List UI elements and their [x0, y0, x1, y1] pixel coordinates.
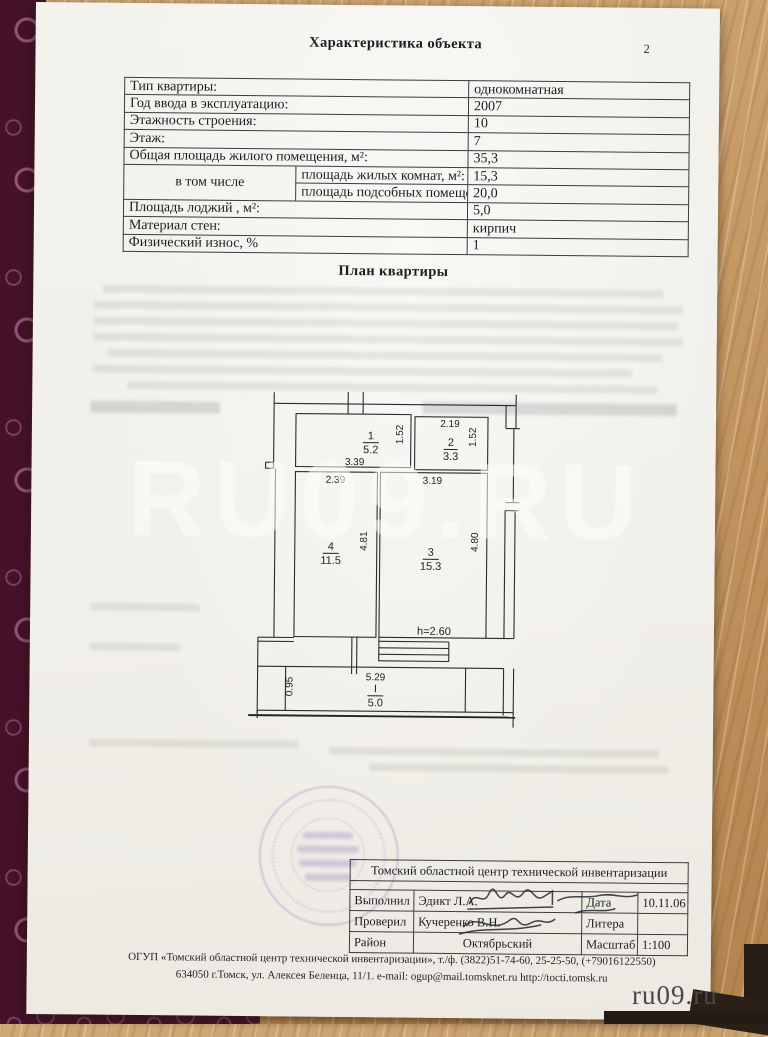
bleedthrough-line [329, 747, 659, 758]
room-depth-dim: 1.52 [395, 424, 406, 444]
row-group-label: в том числе [124, 164, 296, 200]
bleedthrough-line [369, 763, 669, 774]
bleedthrough-heading [90, 401, 220, 414]
bleedthrough-line [92, 365, 632, 378]
bleedthrough-line [93, 317, 678, 331]
page-number: 2 [644, 42, 650, 57]
dark-object-bottom [604, 1011, 768, 1024]
plan-title: План квартиры [93, 261, 693, 284]
org-cell-label: Проверил [350, 911, 414, 933]
watermark-corner: ru09.ru [632, 980, 718, 1011]
photo-of-document: { "page": { "title": "Характеристика объ… [0, 0, 768, 1024]
document-title: Характеристика объекта [96, 33, 696, 56]
room-number: 4 [328, 541, 334, 553]
room-width-dim: 2.39 [326, 475, 346, 486]
row-value: 7 [468, 133, 689, 153]
org-cell-label: Район [349, 932, 413, 954]
room-width-dim: 3.39 [345, 457, 365, 468]
room-number: 2 [448, 437, 454, 449]
room-depth-dim: 4.81 [359, 531, 370, 551]
row-value: кирпич [467, 220, 688, 240]
room-area: 3.3 [443, 451, 458, 463]
row-value: 2007 [468, 98, 689, 118]
loggia-area: 5.0 [368, 697, 383, 709]
room-depth-dim: 4.80 [470, 532, 481, 552]
row-value: 10 [468, 115, 689, 135]
row-value: 1 [467, 237, 688, 257]
row-value: 15,3 [468, 168, 689, 188]
bleedthrough-line [108, 349, 663, 362]
floor-plan-drawing: 1 5.2 3.39 1.52 2.19 2 3.3 1.52 2.39 4 1… [245, 388, 538, 733]
bleedthrough-line [93, 301, 683, 315]
bleedthrough-line [103, 285, 663, 298]
room-area: 11.5 [320, 555, 341, 567]
characteristics-table: Тип квартиры: однокомнатная Год ввода в … [123, 77, 691, 257]
row-label: Физический износ, % [123, 234, 467, 255]
bleedthrough-line [89, 739, 299, 749]
room-depth-dim: 1.52 [468, 427, 479, 447]
document-page: Характеристика объекта 2 Тип квартиры: о… [26, 2, 720, 1021]
loggia-number: I [374, 683, 377, 695]
row-value: 20,0 [468, 185, 689, 205]
row-value: 35,3 [468, 150, 689, 170]
row-value: 5,0 [467, 202, 688, 222]
room-width-dim: 3.19 [423, 476, 443, 487]
loggia-width-dim: 5.29 [366, 672, 386, 683]
ceiling-height-note: h=2.60 [417, 626, 451, 638]
bleedthrough-line [90, 643, 180, 652]
footer: ОГУП «Томский областной центр техническо… [77, 948, 707, 987]
room-area: 5.2 [363, 444, 378, 456]
bleedthrough-line [90, 603, 200, 612]
org-cell-label: Выполнил [350, 890, 414, 912]
bleedthrough-line [93, 333, 683, 347]
signature-scribbles [457, 882, 668, 946]
row-label: площадь подсобных помещений, м²: [296, 183, 468, 202]
room-width-dim: 2.19 [440, 419, 460, 430]
room-area: 15.3 [420, 561, 442, 573]
row-value: однокомнатная [469, 81, 690, 101]
row-label: площадь жилых комнат, м²: [296, 166, 468, 185]
loggia-depth-dim: 0.95 [284, 676, 295, 696]
room-number: 3 [428, 547, 434, 559]
room-number: 1 [368, 430, 374, 442]
